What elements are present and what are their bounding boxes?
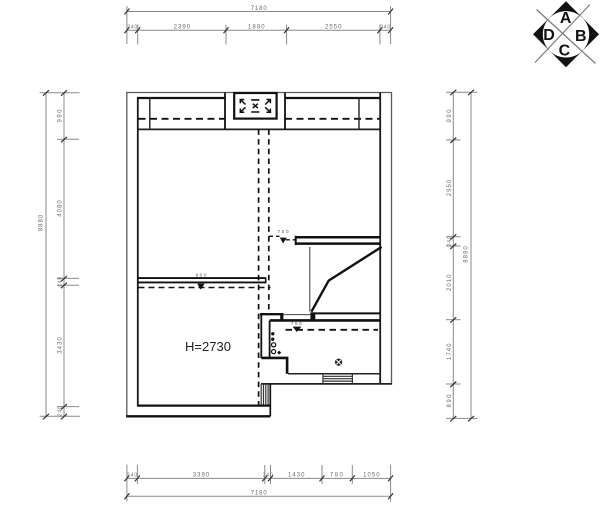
svg-text:990: 990 bbox=[447, 109, 453, 123]
svg-text:8880: 8880 bbox=[39, 214, 45, 231]
svg-text:1880: 1880 bbox=[248, 25, 265, 31]
svg-text:C: C bbox=[559, 42, 571, 59]
svg-text:2950: 2950 bbox=[447, 179, 453, 196]
svg-text:7180: 7180 bbox=[251, 490, 268, 496]
svg-text:780: 780 bbox=[330, 473, 344, 479]
svg-text:1050: 1050 bbox=[363, 473, 380, 479]
svg-text:750: 750 bbox=[278, 229, 289, 235]
svg-text:240: 240 bbox=[58, 406, 64, 416]
svg-text:4080: 4080 bbox=[58, 200, 64, 217]
svg-text:B: B bbox=[575, 28, 587, 45]
svg-text:900: 900 bbox=[196, 272, 207, 278]
svg-text:2010: 2010 bbox=[447, 274, 453, 291]
svg-text:D: D bbox=[543, 27, 555, 44]
svg-text:240: 240 bbox=[380, 25, 390, 31]
svg-text:240: 240 bbox=[447, 236, 453, 246]
svg-text:1430: 1430 bbox=[288, 473, 305, 479]
svg-text:3430: 3430 bbox=[58, 337, 64, 354]
svg-text:A: A bbox=[560, 10, 572, 27]
svg-text:2550: 2550 bbox=[325, 25, 342, 31]
svg-text:2390: 2390 bbox=[174, 25, 191, 31]
svg-text:1740: 1740 bbox=[447, 343, 453, 360]
svg-text:H=2730: H=2730 bbox=[185, 339, 231, 354]
svg-text:240: 240 bbox=[127, 473, 137, 479]
svg-text:750: 750 bbox=[291, 321, 302, 327]
svg-text:3390: 3390 bbox=[193, 473, 210, 479]
svg-text:7180: 7180 bbox=[251, 6, 268, 12]
svg-text:890: 890 bbox=[447, 394, 453, 408]
svg-text:240: 240 bbox=[58, 277, 64, 287]
svg-text:8880: 8880 bbox=[464, 246, 470, 263]
svg-text:240: 240 bbox=[263, 473, 273, 479]
svg-text:240: 240 bbox=[127, 25, 137, 31]
svg-text:990: 990 bbox=[58, 109, 64, 123]
